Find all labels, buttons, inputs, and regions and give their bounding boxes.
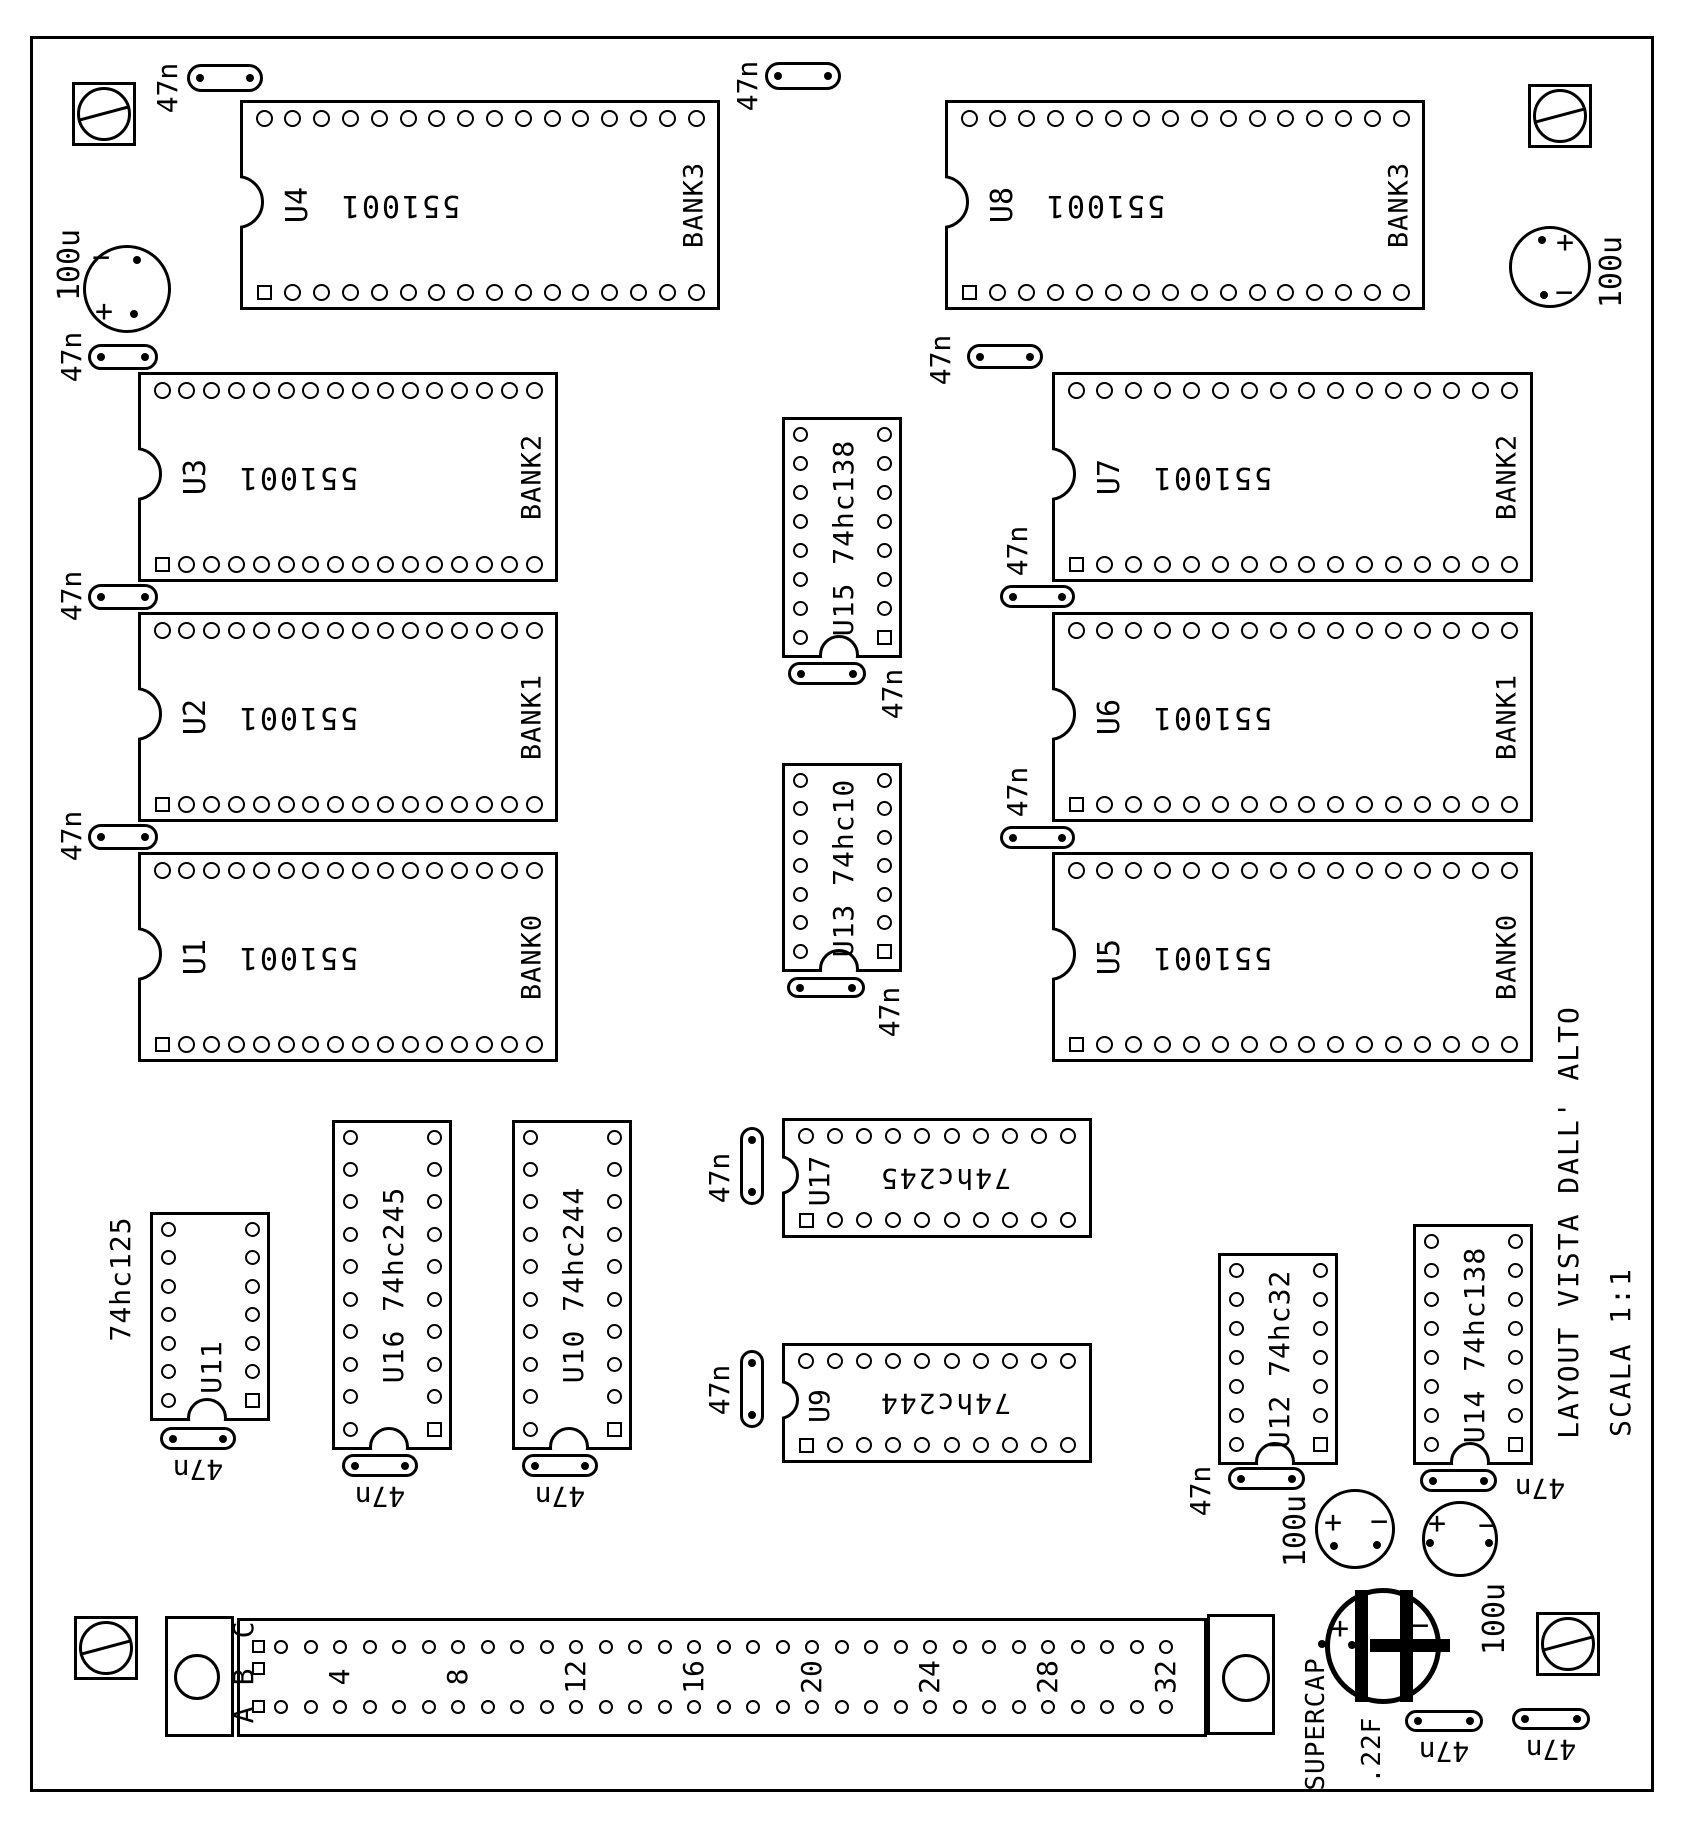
pin-hole xyxy=(1047,284,1064,301)
pin-hole xyxy=(302,556,319,573)
solder-pad xyxy=(796,984,804,992)
pin-hole xyxy=(1393,110,1410,127)
pin-hole xyxy=(476,382,493,399)
pin-hole xyxy=(402,382,419,399)
pin-hole xyxy=(1443,796,1460,813)
pin-hole xyxy=(161,1364,176,1379)
pin-hole xyxy=(422,1700,436,1714)
pin-hole xyxy=(1229,1350,1244,1365)
pin-hole xyxy=(501,622,518,639)
pin-hole xyxy=(1306,110,1323,127)
chip-notch-icon xyxy=(1052,927,1082,987)
pin-hole xyxy=(1212,862,1229,879)
pin-hole xyxy=(1191,284,1208,301)
solder-pad xyxy=(1429,1477,1437,1485)
notch-arc xyxy=(1450,1442,1490,1465)
cap-100u-label: 100u xyxy=(55,229,85,301)
cap-47n-label: 47n xyxy=(173,1455,224,1483)
pin-hole xyxy=(827,1437,843,1453)
pin-hole xyxy=(523,1422,538,1437)
polarity-plus: + xyxy=(1324,1508,1342,1538)
pin-hole xyxy=(327,1036,344,1053)
pin-hole xyxy=(457,284,474,301)
drawing-scale: SCALA 1:1 xyxy=(1607,1267,1635,1437)
pin-hole xyxy=(363,1700,377,1714)
pin-hole xyxy=(793,427,808,442)
bank-label-U3: BANK2 xyxy=(519,434,546,520)
pin-hole xyxy=(352,862,369,879)
pin-hole xyxy=(402,862,419,879)
pin-hole xyxy=(877,456,892,471)
pin-hole xyxy=(1364,110,1381,127)
pin1-square-pad xyxy=(252,1662,265,1675)
pin-hole xyxy=(1130,1640,1144,1654)
pin-hole xyxy=(1249,110,1266,127)
pin-hole xyxy=(352,622,369,639)
solder-pad xyxy=(1058,834,1066,842)
pin-hole xyxy=(1385,862,1402,879)
pin-hole xyxy=(451,1700,465,1714)
pin-hole xyxy=(327,862,344,879)
pin-hole xyxy=(245,1307,260,1322)
cap-47n-label: 47n xyxy=(1004,526,1032,577)
pin-hole xyxy=(1018,284,1035,301)
pin-hole xyxy=(1183,796,1200,813)
pin-hole xyxy=(523,1162,538,1177)
bank-label-U5: BANK0 xyxy=(1494,914,1521,1000)
pin-hole xyxy=(1501,1036,1518,1053)
pin-hole xyxy=(1220,284,1237,301)
pin-hole xyxy=(523,1389,538,1404)
solder-pad xyxy=(141,593,149,601)
notch-arc xyxy=(819,635,859,658)
supercap-plus: + xyxy=(1331,1614,1349,1644)
chip-ref-U6: U6 xyxy=(1095,699,1125,735)
pin-hole xyxy=(607,1292,622,1307)
pin-hole xyxy=(894,1640,908,1654)
pin-hole xyxy=(427,1324,442,1339)
pin-hole xyxy=(1277,284,1294,301)
pin-hole xyxy=(877,572,892,587)
pin1-square-pad xyxy=(1313,1437,1328,1452)
solder-pad xyxy=(849,670,857,678)
connector-pin-number-28: 28 xyxy=(1034,1660,1062,1694)
pin-hole xyxy=(1133,110,1150,127)
pin-hole xyxy=(343,1357,358,1372)
pin-hole xyxy=(1327,796,1344,813)
pin-hole xyxy=(1508,1350,1523,1365)
pin-hole xyxy=(1068,382,1085,399)
pin-hole xyxy=(278,622,295,639)
pin-hole xyxy=(1096,382,1113,399)
solder-pad xyxy=(97,353,105,361)
chip-ref-U3: U3 xyxy=(181,459,211,495)
pin-hole xyxy=(1356,796,1373,813)
pin-hole xyxy=(601,110,618,127)
pin-hole xyxy=(333,1700,347,1714)
solder-pad xyxy=(1237,1475,1245,1483)
pin-hole xyxy=(1270,382,1287,399)
pin-hole xyxy=(944,1128,960,1144)
pin-hole xyxy=(313,284,330,301)
pin-hole xyxy=(481,1700,495,1714)
pin-hole xyxy=(1472,796,1489,813)
pin-hole xyxy=(1313,1321,1328,1336)
pin-hole xyxy=(161,1393,176,1408)
solder-pad xyxy=(1009,593,1017,601)
pin-hole xyxy=(1508,1321,1523,1336)
pin-hole xyxy=(1385,382,1402,399)
pin-hole xyxy=(607,1130,622,1145)
pin-hole xyxy=(402,1036,419,1053)
pin-hole xyxy=(1241,796,1258,813)
pin1-square-pad xyxy=(1508,1437,1523,1452)
pin-hole xyxy=(1414,382,1431,399)
pin-hole xyxy=(1424,1234,1439,1249)
pin-hole xyxy=(203,1036,220,1053)
connector-pin-number-20: 20 xyxy=(798,1660,826,1694)
solder-pad xyxy=(1288,1475,1296,1483)
pin-hole xyxy=(228,1036,245,1053)
pin-hole xyxy=(572,284,589,301)
solder-pad xyxy=(141,353,149,361)
pin-hole xyxy=(1313,1408,1328,1423)
pin-hole xyxy=(457,110,474,127)
pin-hole xyxy=(1130,1700,1144,1714)
polarity-minus: − xyxy=(92,243,110,273)
pin-hole xyxy=(827,1128,843,1144)
pin-hole xyxy=(877,858,892,873)
pin-hole xyxy=(302,622,319,639)
pin-hole xyxy=(877,801,892,816)
polarity-minus: − xyxy=(1555,278,1573,308)
pin-hole xyxy=(427,1194,442,1209)
pin-hole xyxy=(501,796,518,813)
pin-hole xyxy=(161,1222,176,1237)
pin-hole xyxy=(835,1640,849,1654)
pin-hole xyxy=(1356,556,1373,573)
chip-notch-icon xyxy=(187,1398,233,1421)
pin-hole xyxy=(278,796,295,813)
cap-47n-label: 47n xyxy=(1004,767,1032,818)
cap-47n-label: 47n xyxy=(879,669,907,720)
solder-pad xyxy=(848,984,856,992)
solder-pad xyxy=(133,256,141,264)
pin-hole xyxy=(1096,796,1113,813)
pin-hole xyxy=(1424,1292,1439,1307)
notch-arc xyxy=(187,1398,227,1421)
chip-ref-U17: U17 xyxy=(806,1156,834,1207)
pin-hole xyxy=(599,1700,613,1714)
pin-hole xyxy=(161,1250,176,1265)
cap-47n-label: 47n xyxy=(706,1153,734,1204)
pin-hole xyxy=(1212,1036,1229,1053)
chip-label-U11: U11 xyxy=(198,1340,226,1394)
pin-hole xyxy=(540,1700,554,1714)
pin-hole xyxy=(1472,1036,1489,1053)
pin-hole xyxy=(1018,110,1035,127)
solder-pad xyxy=(1540,291,1548,299)
pin-hole xyxy=(510,1640,524,1654)
pin-hole xyxy=(630,110,647,127)
pin-hole xyxy=(973,1437,989,1453)
polarity-plus: + xyxy=(1428,1509,1446,1539)
pin-hole xyxy=(228,622,245,639)
pin-hole xyxy=(793,887,808,902)
chip-part-U9: 74hc244 xyxy=(879,1389,1011,1417)
pin-hole xyxy=(607,1162,622,1177)
pin-hole xyxy=(510,1700,524,1714)
pin-hole xyxy=(1424,1350,1439,1365)
pin-hole xyxy=(427,1292,442,1307)
pin1-square-pad xyxy=(877,630,892,645)
pin-hole xyxy=(1327,1036,1344,1053)
pin-hole xyxy=(1154,796,1171,813)
pin-hole xyxy=(1068,862,1085,879)
pin-hole xyxy=(402,622,419,639)
pin-hole xyxy=(1002,1128,1018,1144)
pin-hole xyxy=(1298,556,1315,573)
pin-hole xyxy=(630,284,647,301)
pin-hole xyxy=(923,1700,937,1714)
pin-hole xyxy=(1096,622,1113,639)
pin-hole xyxy=(327,556,344,573)
pin-hole xyxy=(793,915,808,930)
pin-hole xyxy=(304,1640,318,1654)
chip-notch-icon xyxy=(782,1155,805,1201)
pin-hole xyxy=(1313,1263,1328,1278)
solder-pad xyxy=(1480,1477,1488,1485)
pin-hole xyxy=(746,1700,760,1714)
cap-47n-label: 47n xyxy=(1187,1466,1215,1517)
pin-hole xyxy=(793,543,808,558)
pin-hole xyxy=(1424,1379,1439,1394)
solder-pad xyxy=(774,72,782,80)
cap-47n-label: 47n xyxy=(355,1482,406,1510)
pin-hole xyxy=(953,1700,967,1714)
pin-hole xyxy=(877,601,892,616)
solder-pad xyxy=(824,72,832,80)
pin-hole xyxy=(1298,862,1315,879)
bank-label-U1: BANK0 xyxy=(519,914,546,1000)
cap-100u-label: 100u xyxy=(1480,1583,1510,1655)
pin-hole xyxy=(793,572,808,587)
pin-hole xyxy=(1249,284,1266,301)
pin-hole xyxy=(746,1640,760,1654)
solder-pad xyxy=(141,833,149,841)
pin-hole xyxy=(1443,1036,1460,1053)
chip-notch-icon xyxy=(138,447,168,507)
pin-hole xyxy=(526,796,543,813)
pin-hole xyxy=(877,915,892,930)
pin-hole xyxy=(798,1128,814,1144)
pin-hole xyxy=(877,830,892,845)
pin-hole xyxy=(1125,1036,1142,1053)
pin-hole xyxy=(793,944,808,959)
chip-label-U16: U16 74hc245 xyxy=(380,1187,408,1383)
pin-hole xyxy=(1096,1036,1113,1053)
pin1-square-pad xyxy=(245,1393,260,1408)
pin-hole xyxy=(607,1357,622,1372)
notch-arc xyxy=(1052,447,1076,501)
pin-hole xyxy=(1472,382,1489,399)
supercap-minus: − xyxy=(1411,1611,1429,1641)
chip-part-U8: 551001 xyxy=(1045,190,1165,220)
bank-label-U2: BANK1 xyxy=(519,674,546,760)
solder-pad xyxy=(97,593,105,601)
pin-hole xyxy=(1501,862,1518,879)
pin-hole xyxy=(400,284,417,301)
pin-hole xyxy=(313,110,330,127)
pin-hole xyxy=(688,110,705,127)
pin-hole xyxy=(523,1357,538,1372)
pin-hole xyxy=(1212,382,1229,399)
pin-hole xyxy=(1154,622,1171,639)
pin-hole xyxy=(1270,622,1287,639)
chip-notch-icon xyxy=(1052,687,1082,747)
pin-hole xyxy=(1191,110,1208,127)
pin-hole xyxy=(253,556,270,573)
pin-hole xyxy=(400,110,417,127)
pin-hole xyxy=(835,1700,849,1714)
connector-hole xyxy=(1222,1654,1270,1702)
pin-hole xyxy=(1162,110,1179,127)
pin-hole xyxy=(515,110,532,127)
pin-hole xyxy=(793,830,808,845)
cap-47n-label: 47n xyxy=(58,332,86,383)
pin-hole xyxy=(1096,862,1113,879)
pin-hole xyxy=(944,1437,960,1453)
pin-hole xyxy=(1508,1379,1523,1394)
notch-arc xyxy=(240,175,264,229)
pin-hole xyxy=(371,284,388,301)
pin-hole xyxy=(1100,1700,1114,1714)
pin-hole xyxy=(1071,1700,1085,1714)
pin-hole xyxy=(1154,382,1171,399)
pin-hole xyxy=(1443,862,1460,879)
pin-hole xyxy=(540,1640,554,1654)
pin-hole xyxy=(1002,1437,1018,1453)
pin-hole xyxy=(1335,110,1352,127)
pin-hole xyxy=(1212,556,1229,573)
pin-hole xyxy=(501,1036,518,1053)
pin-hole xyxy=(1154,862,1171,879)
cap-47n-label: 47n xyxy=(154,63,182,114)
solder-pad xyxy=(1414,1717,1422,1725)
pin-hole xyxy=(1125,796,1142,813)
pin-hole xyxy=(343,1324,358,1339)
chip-part-U17: 74hc245 xyxy=(879,1164,1011,1192)
pin-hole xyxy=(1241,556,1258,573)
pin-hole xyxy=(607,1389,622,1404)
pin-hole xyxy=(877,427,892,442)
pin-hole xyxy=(1501,556,1518,573)
pin-hole xyxy=(1076,284,1093,301)
pin1-square-pad xyxy=(962,285,977,300)
solder-pad xyxy=(246,74,254,82)
pin-hole xyxy=(864,1700,878,1714)
pin-hole xyxy=(659,110,676,127)
pin-hole xyxy=(1125,622,1142,639)
pin-hole xyxy=(1154,556,1171,573)
pin-hole xyxy=(422,1640,436,1654)
pin-hole xyxy=(961,110,978,127)
pin-hole xyxy=(427,1259,442,1274)
pin-hole xyxy=(253,862,270,879)
pin-hole xyxy=(352,1036,369,1053)
chip-label-U12: U12 74hc32 xyxy=(1266,1270,1294,1449)
chip-ref-U8: U8 xyxy=(988,187,1018,223)
pin-hole xyxy=(245,1279,260,1294)
pin-hole xyxy=(161,1279,176,1294)
pin-hole xyxy=(203,796,220,813)
notch-arc xyxy=(782,1155,799,1195)
pin-hole xyxy=(451,556,468,573)
cap-47n-label: 47n xyxy=(927,335,955,386)
pin-hole xyxy=(877,485,892,500)
pin-hole xyxy=(302,862,319,879)
pin-hole xyxy=(343,1422,358,1437)
pin-hole xyxy=(1241,862,1258,879)
pin-hole xyxy=(923,1640,937,1654)
pin-hole xyxy=(1229,1292,1244,1307)
pin-hole xyxy=(352,382,369,399)
pin-hole xyxy=(1068,622,1085,639)
pin-hole xyxy=(402,556,419,573)
pin-hole xyxy=(1385,556,1402,573)
pin-hole xyxy=(451,1640,465,1654)
pin-hole xyxy=(1385,796,1402,813)
pin-hole xyxy=(1298,622,1315,639)
notch-arc xyxy=(138,687,162,741)
pin-hole xyxy=(1501,622,1518,639)
chip-part-U1: 551001 xyxy=(238,942,358,972)
pin-hole xyxy=(1385,1036,1402,1053)
pin-hole xyxy=(501,862,518,879)
cap-47n-label: 47n xyxy=(1419,1737,1470,1765)
pin-hole xyxy=(526,556,543,573)
solder-pad xyxy=(748,1136,756,1144)
pin-hole xyxy=(1508,1234,1523,1249)
cap-100u-2 xyxy=(1509,226,1591,308)
pin-hole xyxy=(793,601,808,616)
pin-hole xyxy=(1313,1292,1328,1307)
notch-arc xyxy=(369,1427,409,1450)
supercap-value: .22F xyxy=(1359,1717,1385,1784)
pin-hole xyxy=(427,1162,442,1177)
chip-part-U6: 551001 xyxy=(1152,702,1272,732)
pin-hole xyxy=(1041,1700,1055,1714)
pin-hole xyxy=(1031,1353,1047,1369)
pin-hole xyxy=(352,796,369,813)
pin-hole xyxy=(1443,556,1460,573)
solder-pad xyxy=(1373,1541,1381,1549)
pin-hole xyxy=(1414,862,1431,879)
pin-hole xyxy=(793,858,808,873)
pin-hole xyxy=(1125,382,1142,399)
pin-hole xyxy=(607,1227,622,1242)
pin-hole xyxy=(1335,284,1352,301)
notch-arc xyxy=(1052,927,1076,981)
solder-pad xyxy=(351,1462,359,1470)
pin-hole xyxy=(1076,110,1093,127)
chip-notch-icon xyxy=(138,927,168,987)
pin-hole xyxy=(302,796,319,813)
pin-hole xyxy=(476,796,493,813)
pin-hole xyxy=(1356,382,1373,399)
pin-hole xyxy=(1424,1263,1439,1278)
pin-hole xyxy=(793,456,808,471)
